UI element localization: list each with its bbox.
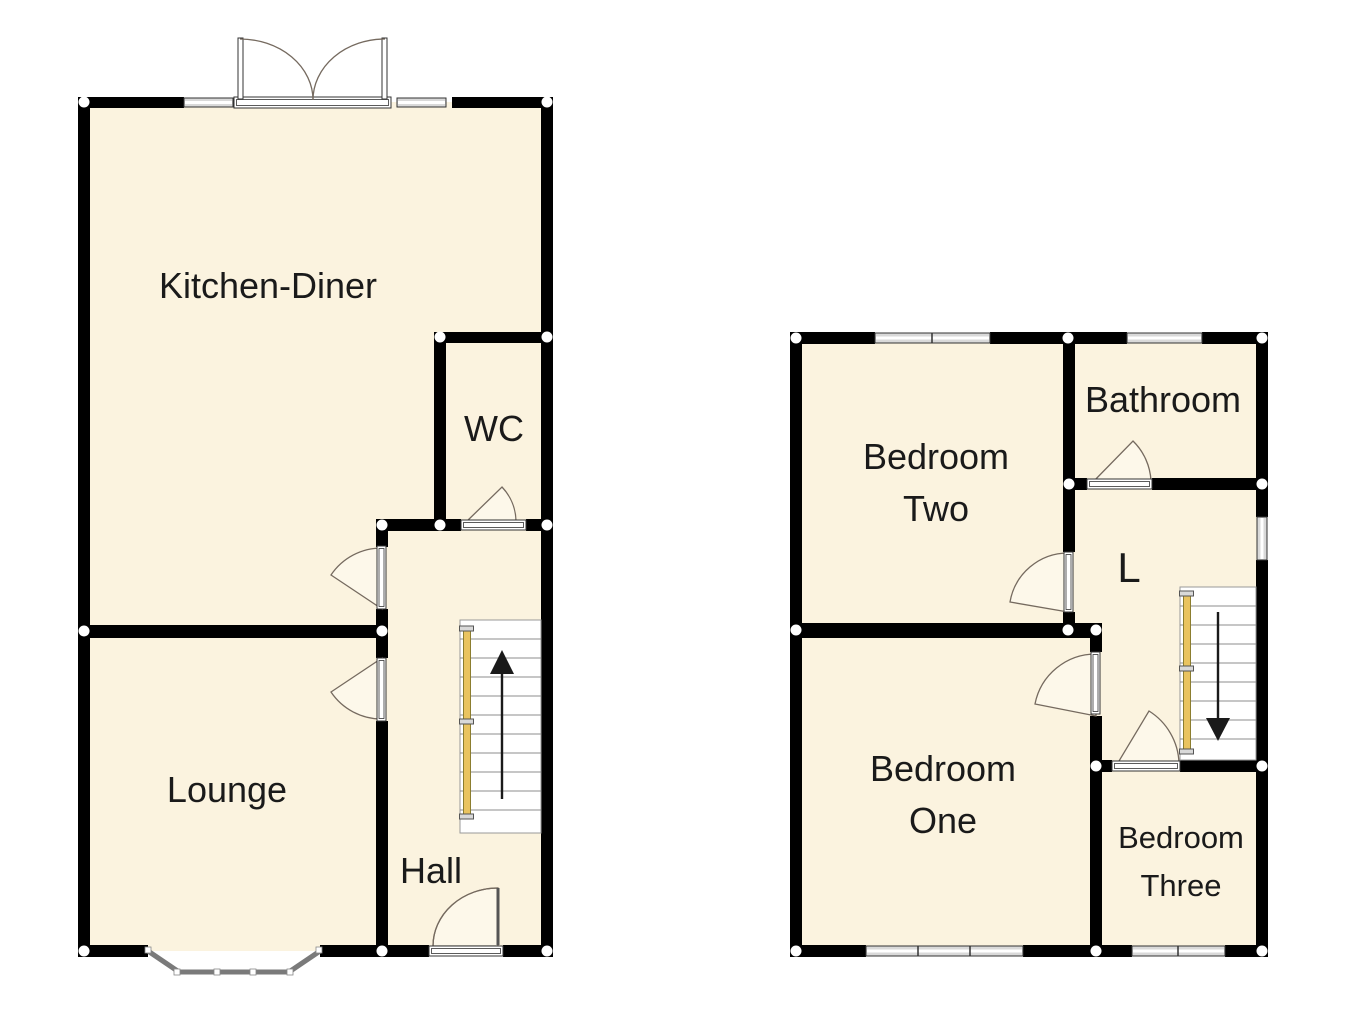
ground-floor-plan: Kitchen-Diner WC Lounge Hall xyxy=(78,38,553,975)
bedroom-one-label-line2: One xyxy=(909,800,977,841)
landing-window xyxy=(1257,517,1267,560)
bedroom-three-window xyxy=(1132,946,1225,956)
bedroom-three-label-line2: Three xyxy=(1141,868,1222,903)
lounge-label: Lounge xyxy=(167,769,287,810)
bedroom-two-label-line2: Two xyxy=(903,488,969,529)
french-doors xyxy=(234,38,391,108)
bedroom-three-label-line1: Bedroom xyxy=(1118,820,1244,855)
bedroom-two-label-line1: Bedroom xyxy=(863,436,1009,477)
bay-window xyxy=(145,947,322,975)
stairs-up xyxy=(460,620,542,833)
bathroom-label: Bathroom xyxy=(1085,379,1241,420)
first-floor-plan: Bedroom Two Bathroom L Bedroom One Bedro… xyxy=(790,332,1268,957)
bedroom-one-window xyxy=(866,946,1023,956)
hall-label: Hall xyxy=(400,850,462,891)
wc-label: WC xyxy=(464,408,524,449)
kitchen-window-left xyxy=(184,98,233,107)
bedroom-one-label-line1: Bedroom xyxy=(870,748,1016,789)
bedroom-two-window xyxy=(875,333,990,343)
landing-label: L xyxy=(1117,544,1140,591)
kitchen-window-right xyxy=(397,98,446,107)
stairs-down xyxy=(1180,587,1257,760)
floorplan-page: Kitchen-Diner WC Lounge Hall xyxy=(0,0,1348,1023)
bathroom-window xyxy=(1127,333,1202,343)
kitchen-diner-label: Kitchen-Diner xyxy=(159,265,377,306)
